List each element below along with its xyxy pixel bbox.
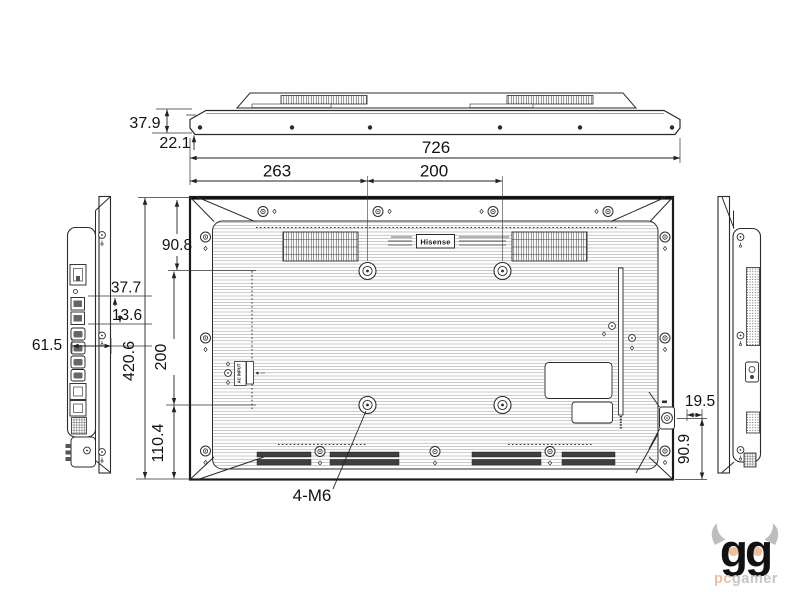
rear-vent-grille-left xyxy=(283,232,358,261)
dim-side-depth: 61.5 xyxy=(32,337,62,354)
cable-channel-strip xyxy=(619,268,624,415)
rear-view: Hisense xyxy=(190,197,675,480)
vesa-thread-callout: 4-M6 xyxy=(293,486,332,505)
technical-drawing-page: Hisense xyxy=(0,0,800,600)
power-inlet xyxy=(746,362,759,382)
top-slot-right xyxy=(470,104,533,108)
top-slot-left xyxy=(252,104,331,108)
right-side-view xyxy=(718,197,761,474)
ac-input-label: AC INPUT xyxy=(237,363,242,383)
dim-vesa-height: 200 xyxy=(153,344,170,371)
dim-power-offset: 19.5 xyxy=(685,393,715,410)
right-vent-grille xyxy=(747,268,760,346)
top-view xyxy=(190,93,680,135)
top-view-screws xyxy=(198,125,674,129)
dim-depth-front: 22.1 xyxy=(159,135,190,152)
side-vent-grille xyxy=(72,418,87,435)
rear-vent-grille-right xyxy=(512,232,587,261)
right-vent-grille-lower xyxy=(747,412,760,433)
technical-drawing: Hisense xyxy=(0,0,800,600)
top-view-front-slab xyxy=(190,111,680,135)
watermark-gg: gg xyxy=(720,525,771,577)
watermark-pc: pc xyxy=(714,571,732,587)
brand-logo-text: Hisense xyxy=(420,238,450,247)
dim-width-total: 726 xyxy=(422,138,450,157)
dim-height-total: 420.6 xyxy=(121,341,138,381)
dim-top-to-vesa: 90.8 xyxy=(162,237,192,254)
dim-vesa-to-bottom: 110.4 xyxy=(150,423,167,462)
watermark-gamer: gamer xyxy=(732,571,778,587)
right-bottom-connector xyxy=(744,453,756,467)
dim-vesa-width: 200 xyxy=(420,162,448,181)
top-vent-grille-left xyxy=(281,96,367,105)
rear-panel xyxy=(213,221,659,469)
info-label xyxy=(572,402,613,423)
dim-port-offset-b: 13.6 xyxy=(112,307,142,324)
rating-label xyxy=(545,363,612,399)
svg-text:pcgamer: pcgamer xyxy=(714,571,778,587)
side-connector-stubs xyxy=(66,444,72,461)
dim-power-to-bottom: 90.9 xyxy=(676,434,693,464)
pcgamer-watermark: gg pcgamer xyxy=(712,524,778,588)
dim-depth-total: 37.9 xyxy=(129,115,160,132)
dim-port-offset-a: 37.7 xyxy=(111,280,141,297)
audio-jack xyxy=(74,290,78,294)
left-side-view xyxy=(66,197,111,474)
top-vent-grille-right xyxy=(507,96,593,105)
dim-left-to-vesa: 263 xyxy=(263,162,291,181)
